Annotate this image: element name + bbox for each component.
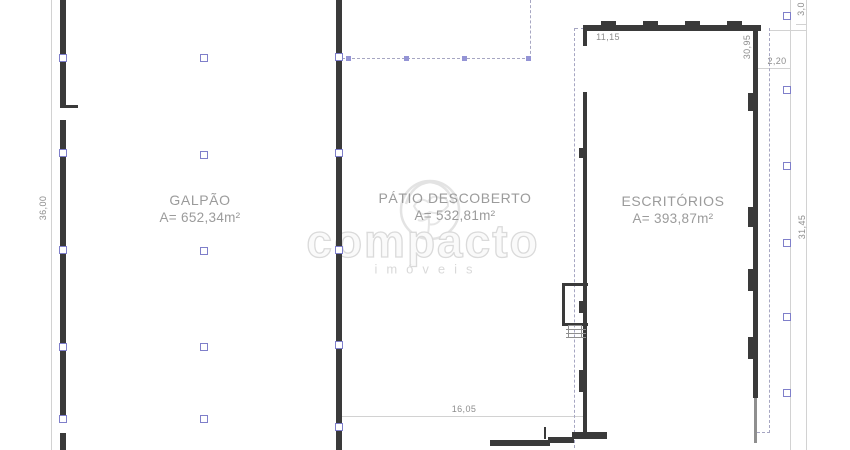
dimension-line [757, 68, 791, 69]
column-marker [59, 246, 67, 254]
area-size-galpao: A= 652,34m² [160, 209, 241, 226]
wall-segment [583, 25, 761, 31]
wall-segment-light [568, 325, 569, 337]
column-marker [59, 415, 67, 423]
dashed-boundary-line [574, 28, 575, 448]
wall-segment [748, 93, 753, 111]
dimension-label: 16,05 [452, 404, 477, 414]
column-marker [200, 343, 208, 351]
wall-segment [583, 92, 587, 433]
wall-segment [583, 31, 587, 46]
column-marker [783, 162, 791, 170]
wall-segment [685, 21, 700, 25]
column-marker [335, 423, 343, 431]
column-marker [783, 239, 791, 247]
column-marker [335, 341, 343, 349]
wall-segment [60, 105, 78, 108]
wall-segment [748, 269, 753, 291]
column-marker [59, 343, 67, 351]
dashed-boundary-line [530, 0, 531, 59]
dimension-line [341, 416, 586, 417]
dimension-label: 3,0 [796, 2, 806, 16]
dashed-boundary-line [769, 28, 770, 433]
wall-segment [753, 25, 758, 398]
watermark-tagline: imóveis [374, 262, 481, 277]
wall-segment [548, 437, 574, 443]
column-marker [335, 53, 343, 61]
area-label-escritorios: ESCRITÓRIOS A= 393,87m² [621, 193, 724, 227]
column-marker-small [462, 56, 467, 61]
wall-segment-light [754, 398, 757, 443]
wall-segment [544, 427, 546, 439]
wall-segment [562, 283, 565, 326]
column-marker [200, 247, 208, 255]
dimension-label: 36,00 [38, 196, 48, 221]
area-name-escritorios: ESCRITÓRIOS [621, 193, 724, 211]
wall-segment-light [568, 325, 582, 326]
column-marker [200, 54, 208, 62]
wall-segment-light [581, 325, 582, 337]
wall-segment [579, 301, 583, 313]
dimension-label: 11,15 [596, 32, 620, 42]
wall-segment [336, 0, 342, 450]
wall-segment [748, 337, 753, 359]
area-name-galpao: GALPÃO [160, 192, 241, 210]
column-marker-small [346, 56, 351, 61]
dimension-label: 30,95 [742, 35, 752, 60]
area-label-galpao: GALPÃO A= 652,34m² [160, 192, 241, 226]
wall-segment [572, 432, 607, 439]
wall-segment [490, 440, 550, 446]
dashed-boundary-line [342, 58, 530, 59]
floor-plan-canvas: 36,0011,1530,952,203,031,4516,05 compact… [0, 0, 850, 450]
wall-segment [643, 21, 658, 25]
wall-segment [60, 120, 66, 420]
column-marker [200, 151, 208, 159]
column-marker-small [526, 56, 531, 61]
wall-segment-light [566, 333, 586, 334]
column-marker [200, 415, 208, 423]
area-size-escritorios: A= 393,87m² [621, 210, 724, 227]
column-marker [59, 149, 67, 157]
column-marker [783, 12, 791, 20]
wall-segment [579, 148, 583, 158]
column-marker [783, 86, 791, 94]
area-name-patio: PÁTIO DESCOBERTO [378, 190, 531, 208]
column-marker [335, 246, 343, 254]
wall-segment [601, 21, 616, 25]
wall-segment [579, 370, 583, 392]
wall-segment [748, 207, 753, 227]
wall-segment-light [566, 337, 586, 338]
dimension-label: 31,45 [797, 215, 807, 240]
column-marker-small [404, 56, 409, 61]
dimension-label: 2,20 [767, 56, 786, 66]
column-marker [783, 389, 791, 397]
area-label-patio: PÁTIO DESCOBERTO A= 532,81m² [378, 190, 531, 224]
dashed-boundary-line [757, 432, 770, 433]
wall-segment [60, 433, 66, 450]
area-size-patio: A= 532,81m² [378, 207, 531, 224]
dimension-line [770, 30, 807, 31]
column-marker [59, 54, 67, 62]
wall-segment [562, 283, 588, 286]
column-marker [783, 313, 791, 321]
dimension-line [51, 0, 52, 450]
wall-segment [727, 21, 742, 25]
column-marker [335, 149, 343, 157]
dimension-line [796, 24, 807, 25]
wall-segment-light [566, 329, 586, 330]
